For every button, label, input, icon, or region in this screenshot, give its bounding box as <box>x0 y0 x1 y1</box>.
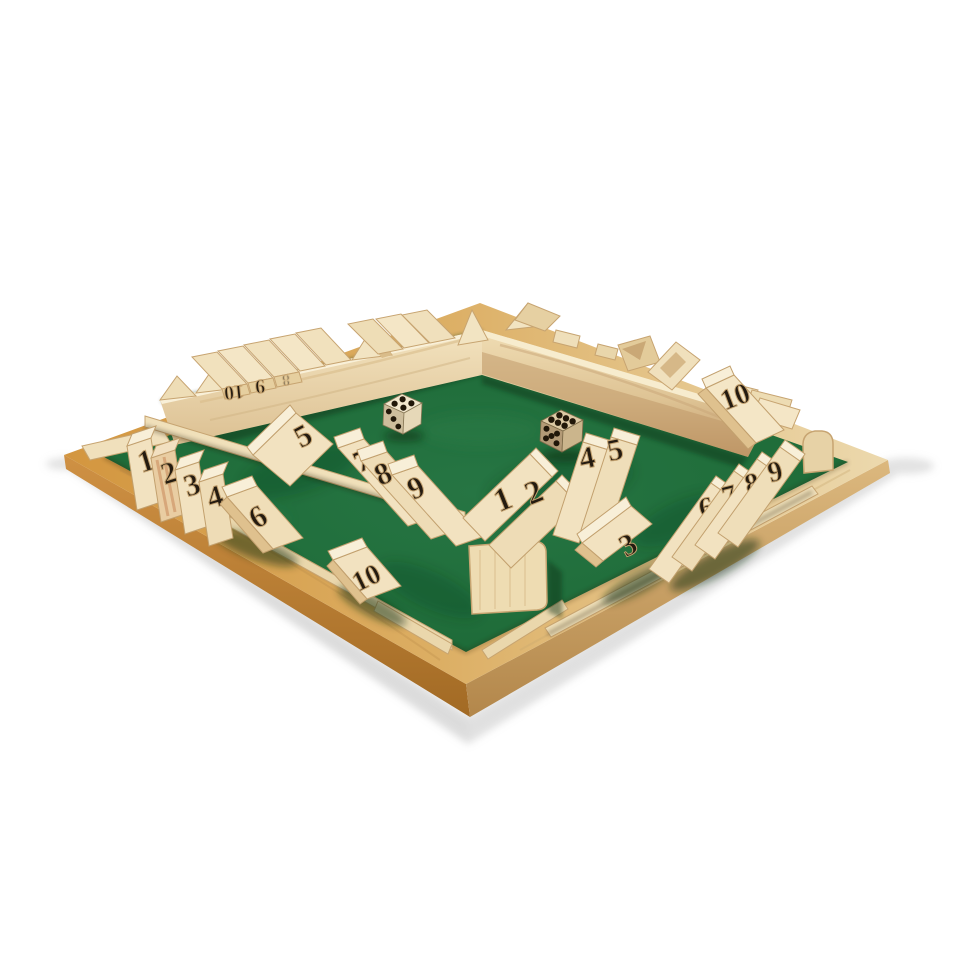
tile-leaning-triangle <box>160 376 196 400</box>
product-photo-shut-the-box: 10 9 8 7 <box>0 0 960 960</box>
photo-canvas: 10 9 8 7 <box>0 0 960 960</box>
tile-label: 10 <box>223 380 245 404</box>
right-rail-end-cap <box>803 431 833 473</box>
